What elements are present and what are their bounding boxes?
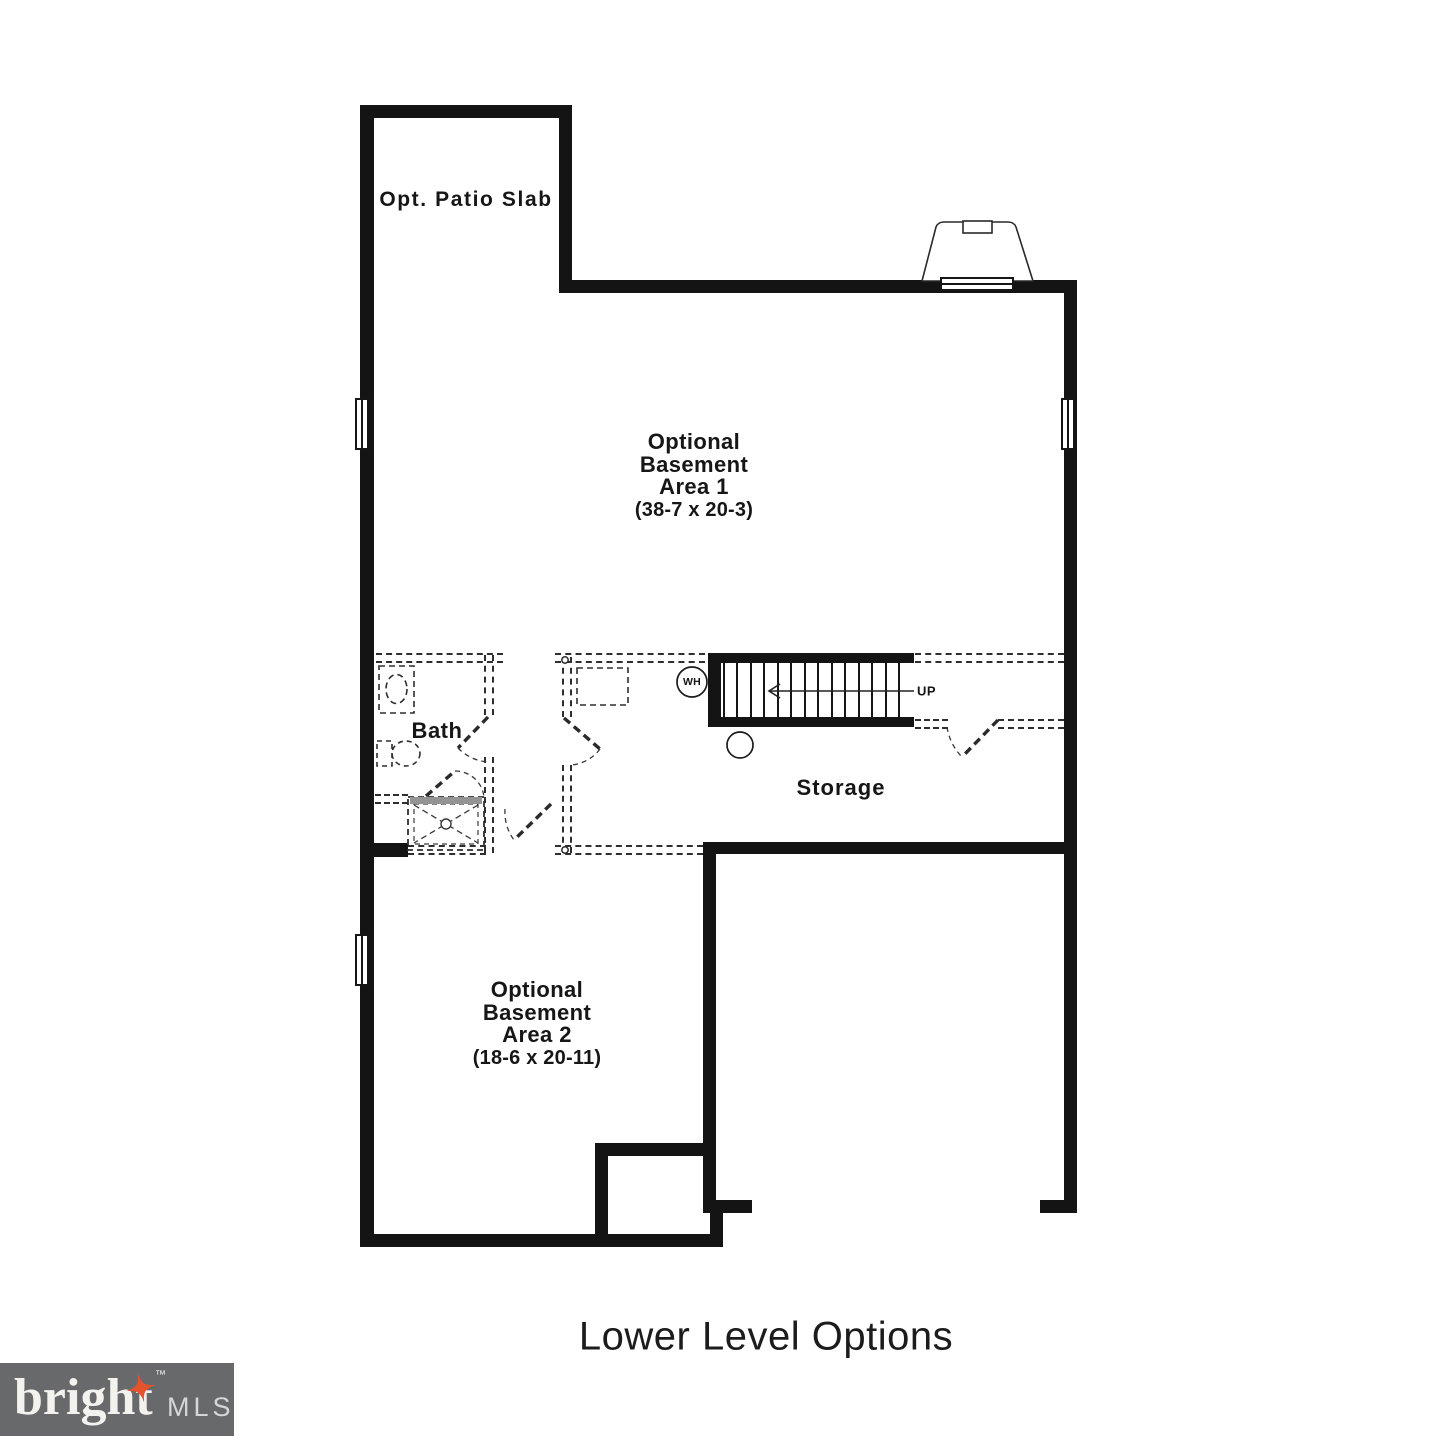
shower-icon — [408, 797, 484, 850]
water-heater-label: WH — [683, 676, 701, 688]
plan-title: Lower Level Options — [579, 1315, 953, 1360]
toilet-icon — [377, 741, 420, 766]
area1-name: Optional Basement Area 1 — [635, 431, 753, 499]
window-left-upper — [355, 398, 369, 450]
area2-name: Optional Basement Area 2 — [473, 979, 601, 1047]
area2-label: Optional Basement Area 2 (18-6 x 20-11) — [473, 979, 601, 1069]
stairs-treads — [724, 663, 899, 717]
brightmls-logo-suffix-text: MLS — [167, 1392, 235, 1423]
closet-outline — [577, 668, 628, 705]
door-swings — [426, 717, 998, 840]
stairs-up-label: UP — [917, 684, 936, 699]
area2-dimensions: (18-6 x 20-11) — [473, 1047, 601, 1069]
vanity-sink-icon — [379, 666, 414, 713]
brightmls-star-icon — [125, 1372, 157, 1404]
area1-label: Optional Basement Area 1 (38-7 x 20-3) — [635, 431, 753, 521]
window-right — [1061, 398, 1075, 450]
storage-label: Storage — [797, 775, 886, 801]
window-top-egress — [940, 277, 1014, 291]
door-hinge-pins — [562, 657, 568, 853]
area1-dimensions: (38-7 x 20-3) — [635, 499, 753, 521]
floor-plan-page: Opt. Patio Slab Optional Basement Area 1… — [0, 0, 1440, 1440]
bath-label: Bath — [412, 718, 463, 744]
patio-label: Opt. Patio Slab — [379, 188, 552, 212]
window-left-lower — [355, 934, 369, 986]
brightmls-trademark: ™ — [155, 1369, 166, 1381]
fixtures-overlay — [0, 0, 1440, 1440]
sump-pump-icon — [727, 732, 753, 758]
